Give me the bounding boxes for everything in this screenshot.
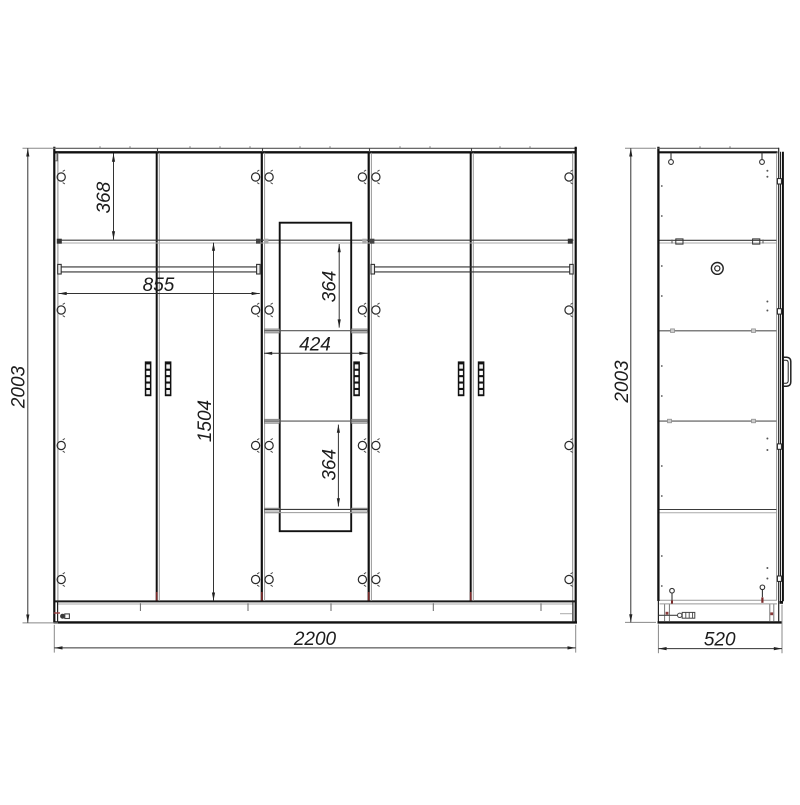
svg-text:520: 520 bbox=[704, 630, 736, 651]
svg-text:364: 364 bbox=[319, 449, 340, 481]
svg-text:364: 364 bbox=[320, 271, 341, 303]
svg-text:424: 424 bbox=[299, 335, 331, 356]
svg-text:1504: 1504 bbox=[195, 400, 216, 442]
svg-text:2003: 2003 bbox=[612, 360, 633, 404]
svg-text:368: 368 bbox=[94, 181, 115, 213]
svg-text:2003: 2003 bbox=[9, 365, 30, 409]
svg-text:855: 855 bbox=[143, 275, 175, 296]
svg-text:2200: 2200 bbox=[293, 629, 337, 650]
